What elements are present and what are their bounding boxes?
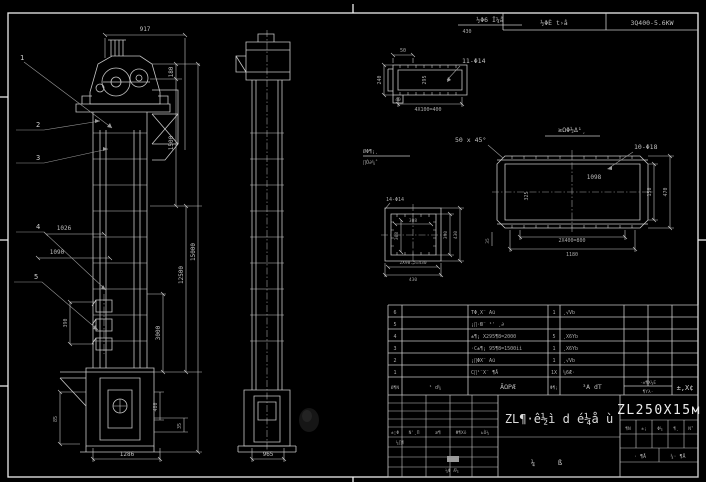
dim-1500: 1500 bbox=[168, 135, 175, 150]
rev-header-3: æ¶ bbox=[435, 430, 441, 436]
bom-header-weight-top: ·±¶X¼E bbox=[640, 380, 657, 386]
bom-no: 3 bbox=[393, 346, 396, 352]
model-cell-4: ¶¸ bbox=[673, 426, 678, 432]
rev-footer-label: ¼Φ Æ¼ bbox=[445, 468, 459, 474]
bom-mat: ¼6Æ· bbox=[563, 370, 575, 376]
bom-mat: ¸√Vb bbox=[563, 358, 575, 364]
dim-308w: 308 bbox=[409, 218, 417, 224]
bom-name: ¡∏·Ю¨ ¹' ¸∂ bbox=[471, 322, 504, 328]
dim-800: 2X400=800 bbox=[558, 238, 585, 244]
bom-no: 1 bbox=[393, 370, 396, 376]
dim-390b: 390 bbox=[443, 231, 449, 239]
balloon-4: 4 bbox=[36, 223, 40, 231]
model-cell-2: ±¡ bbox=[641, 427, 646, 432]
model-cell-1: ¶Ν bbox=[625, 426, 631, 432]
dim-180: 180 bbox=[168, 66, 175, 77]
rev-header-5: ьÒ¼ bbox=[481, 429, 489, 436]
front-view-buckets bbox=[92, 294, 112, 354]
side-view-dimensions: 965 bbox=[250, 448, 286, 462]
front-view-head bbox=[76, 40, 178, 160]
balloon-2: 2 bbox=[36, 121, 40, 129]
header-field-1: ½ΦÈ t›å bbox=[540, 18, 567, 27]
dim-15000: 15000 bbox=[190, 243, 197, 261]
bom-header-code: ¹ d¼ bbox=[429, 385, 441, 391]
bom-no: 6 bbox=[393, 310, 396, 316]
side-view: 965 bbox=[236, 30, 319, 462]
balloon-3: 3 bbox=[36, 154, 40, 162]
dim-3000: 3000 bbox=[155, 325, 162, 340]
bom-mat: ¸X6Yb bbox=[563, 334, 578, 340]
dim-480: 480 bbox=[153, 402, 159, 411]
cad-drawing-canvas: ½ΦÈ t›å 3Q400-5.6KW bbox=[0, 0, 706, 482]
side-notes: ØΦ¶¡¸ ∏Ò∂¼˚ bbox=[363, 148, 410, 166]
front-view: 917 180 1500 12500 3000 15000 480 35 102… bbox=[14, 26, 202, 462]
model-cell-3: Φ¼ bbox=[657, 426, 663, 432]
front-view-balloons: 1 2 3 4 5 bbox=[14, 54, 112, 330]
chamfer-note: 50 x 45° bbox=[455, 136, 486, 144]
model-number: ZL250X15м bbox=[617, 403, 701, 418]
dim-1098: 1098 bbox=[587, 174, 602, 181]
callout-10-18: 10-Φ18 bbox=[634, 143, 658, 151]
square-detail: 14-Φ14 308 308 390 430 2X98.5=430 430 bbox=[381, 197, 464, 283]
bom-name: ±¶¡ X295¶8=2000 bbox=[471, 334, 516, 340]
revision-grid: ±¦Φ Ν'¸Π æ¶ Φ¶Xõ ьÒ¼ ¼∏¶ ¼Φ Æ¼ bbox=[388, 395, 498, 477]
detail-a-scale: 430 bbox=[462, 29, 471, 35]
bom-qty: 1 bbox=[552, 346, 555, 352]
bom-qty: 1X bbox=[551, 370, 557, 376]
dim-1026: 1026 bbox=[57, 225, 72, 232]
bom-qty: 1 bbox=[552, 358, 555, 364]
title-block: ±¦Φ Ν'¸Π æ¶ Φ¶Xõ ьÒ¼ ¼∏¶ ¼Φ Æ¼ ZL¶·ê½ì d… bbox=[388, 395, 701, 477]
dim-35b: 35 bbox=[485, 238, 491, 244]
drawing-svg: ½ΦÈ t›å 3Q400-5.6KW bbox=[0, 0, 706, 482]
note-line-1: ØΦ¶¡¸ bbox=[363, 148, 378, 155]
note-line-2: ∏Ò∂¼˚ bbox=[363, 159, 378, 166]
bom-table: 6 TΦ¸X¨ Aü 1 ¸√Vb 5 ¡∏·Ю¨ ¹' ¸∂ 4 ±¶¡ X2… bbox=[388, 305, 698, 395]
rev-header-4: Φ¶Xõ bbox=[456, 430, 467, 436]
title-glyph-1: ¼ bbox=[531, 459, 535, 467]
bom-name: ·C±¶¡ 95¶8=1500ìì bbox=[471, 345, 522, 352]
bom-name: TΦ¸X¨ Aü bbox=[471, 310, 495, 316]
sheet-right-label: ¼· ¶Å bbox=[670, 453, 685, 460]
dim-325: 325 bbox=[524, 191, 530, 200]
dim-470: 470 bbox=[663, 187, 669, 196]
header-field-2: 3Q400-5.6KW bbox=[630, 19, 673, 27]
balloon-1: 1 bbox=[20, 54, 24, 62]
model-cell-5: Ν˚ bbox=[688, 425, 693, 432]
rev-highlight-cell bbox=[447, 456, 459, 462]
bom-qty: 1 bbox=[552, 310, 555, 316]
bom-mat: ¸√Vb bbox=[563, 310, 575, 316]
model-block: ZL250X15м ¶Ν ±¡ Φ¼ ¶¸ Ν˚ · ¶Å ¼· ¶Å bbox=[617, 403, 701, 462]
bom-header-remark: ±,X¢ bbox=[677, 384, 694, 392]
bom-qty: 5 bbox=[552, 334, 555, 340]
bom-header-no: Ø¶Ν bbox=[391, 384, 399, 391]
bom-no: 2 bbox=[393, 358, 396, 364]
dim-85: 85 bbox=[53, 416, 59, 422]
bom-name: C∏¹¨X¨ ¶Å bbox=[471, 369, 498, 376]
dim-430r: 430 bbox=[453, 231, 459, 239]
dim-917: 917 bbox=[140, 26, 151, 33]
detail-a-title: ½Φ6 Î¼å bbox=[476, 15, 503, 24]
dim-1180: 1180 bbox=[566, 252, 578, 258]
bom-name: ¡∏ΦX¨ Aü bbox=[471, 358, 495, 364]
title-area: ZL¶·ê½ì d é¼å ù ¼ ß bbox=[498, 412, 620, 467]
dim-240: 240 bbox=[377, 75, 383, 84]
dim-430b2: 430 bbox=[409, 277, 417, 283]
dim-295: 295 bbox=[422, 75, 428, 84]
dim-35: 35 bbox=[177, 423, 183, 429]
callout-14-14: 14-Φ14 bbox=[386, 197, 404, 203]
dim-1286: 1286 bbox=[120, 451, 135, 458]
dim-150: 150 bbox=[647, 187, 653, 196]
rev-header-2: Ν'¸Π bbox=[409, 430, 420, 436]
bom-no: 4 bbox=[393, 334, 396, 340]
rev-header-1: ±¦Φ bbox=[391, 430, 399, 436]
bom-header-mat: ³Α dΤ bbox=[582, 383, 602, 391]
dim-308h: 308 bbox=[394, 232, 400, 240]
front-view-dimensions: 917 180 1500 12500 3000 15000 480 35 102… bbox=[36, 26, 202, 462]
bom-header-qty: Φ¶¡ bbox=[550, 385, 558, 391]
bom-header-name: ÃΩΡÆ bbox=[500, 382, 516, 391]
drawing-title: ZL¶·ê½ì d é¼å ù bbox=[505, 412, 613, 426]
dim-1090: 1090 bbox=[50, 249, 65, 256]
flange-detail: 50 240 295 40 4X100=400 11-Φ14 bbox=[377, 48, 486, 113]
detail-a-label: ½Φ6 Î¼å 430 bbox=[458, 15, 522, 35]
dim-430b1: 2X98.5=430 bbox=[399, 260, 426, 266]
sheet-left-label: · ¶Å bbox=[634, 453, 646, 460]
dim-965: 965 bbox=[263, 451, 274, 458]
dim-4x100: 4X100=400 bbox=[414, 107, 441, 113]
casing-detail: ≥ΩΦ½Δ¹¸ 1098 325 50 x 45° 10-Φ18 150 470… bbox=[455, 126, 674, 258]
bom-mat: ¸X6Yb bbox=[563, 346, 578, 352]
header-bar: ½ΦÈ t›å 3Q400-5.6KW bbox=[503, 13, 698, 30]
bom-no: 5 bbox=[393, 322, 396, 328]
bom-rows: 6 TΦ¸X¨ Aü 1 ¸√Vb 5 ¡∏·Ю¨ ¹' ¸∂ 4 ±¶¡ X2… bbox=[393, 310, 578, 376]
dim-12500: 12500 bbox=[178, 266, 185, 284]
title-glyph-2: ß bbox=[558, 459, 562, 467]
dim-50: 50 bbox=[400, 48, 406, 54]
bom-header: Ø¶Ν ¹ d¼ ÃΩΡÆ Φ¶¡ ³Α dΤ ·±¶X¼E ¶Yλ· ±,X¢ bbox=[391, 380, 694, 395]
casing-title: ≥ΩΦ½Δ¹¸ bbox=[558, 126, 585, 134]
rev-left-label: ¼∏¶ bbox=[396, 440, 404, 446]
callout-11-14: 11-Φ14 bbox=[462, 57, 486, 65]
dim-390: 390 bbox=[63, 318, 69, 327]
balloon-5: 5 bbox=[34, 273, 38, 281]
bom-header-weight-bottom: ¶Yλ· bbox=[643, 389, 654, 395]
front-view-boot bbox=[60, 368, 160, 452]
